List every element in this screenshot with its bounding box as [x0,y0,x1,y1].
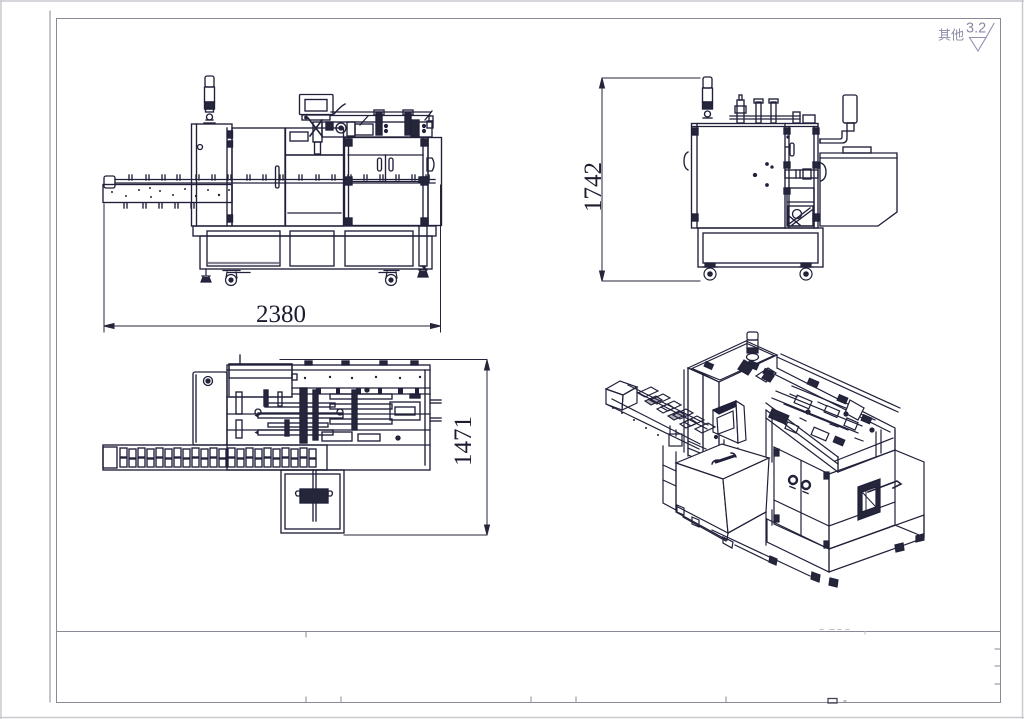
svg-text:3.2: 3.2 [966,21,986,37]
svg-text:其他: 其他 [938,28,964,43]
svg-text:1742: 1742 [580,162,607,212]
svg-text:1471: 1471 [450,416,477,466]
svg-text:2380: 2380 [256,301,306,328]
